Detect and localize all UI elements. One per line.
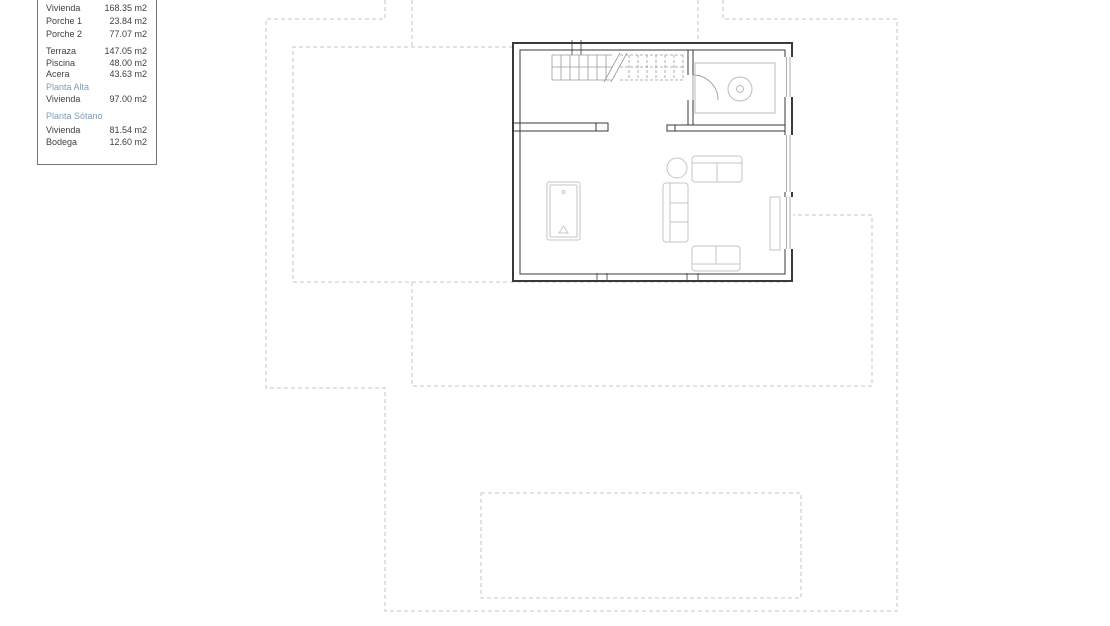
door-arc [693,75,718,100]
legend-value: 97.00 m2 [109,94,147,105]
bathroom-door [693,75,718,100]
sofa-left [663,183,688,242]
legend-value: 48.00 m2 [109,58,147,69]
interior-walls [513,50,785,131]
legend-label: Vivienda [46,125,80,136]
legend-label: Vivienda [46,3,80,14]
furniture [547,156,780,271]
legend-row: Bodega 12.60 m2 [38,137,156,148]
table-triangle-mark [559,226,568,233]
round-table [667,158,687,178]
legend-label: Bodega [46,137,77,148]
pool-table [547,182,580,240]
washbasin-drain [737,86,744,93]
legend-label: Piscina [46,58,75,69]
stair-break-line [611,53,627,82]
legend-row: Vivienda 168.35 m2 [38,3,156,14]
stair-break-line [604,53,620,82]
wall-end-cap [596,123,608,131]
pool-outline-dashed [481,493,801,598]
legend-value: 147.05 m2 [104,46,147,57]
legend-section-heading: Planta Sótano [38,111,156,122]
legend-row: Porche 2 77.07 m2 [38,29,156,40]
area-legend-box: Vivienda 168.35 m2 Porche 1 23.84 m2 Por… [37,0,157,165]
sofa-bottom [692,246,740,271]
plot-boundary-dashed [266,0,897,611]
stair-dashed-flight [620,55,683,80]
legend-value: 12.60 m2 [109,137,147,148]
bathroom-fixtures [695,63,775,113]
legend-value: 23.84 m2 [109,16,147,27]
legend-value: 77.07 m2 [109,29,147,40]
legend-label: Porche 2 [46,29,82,40]
washbasin-counter [695,63,775,113]
sofa-top [692,156,742,182]
legend-value: 168.35 m2 [104,3,147,14]
legend-row: Porche 1 23.84 m2 [38,16,156,27]
building-walls [513,40,792,282]
legend-label: Terraza [46,46,76,57]
wall-end-cap [667,125,675,131]
legend-label: Vivienda [46,94,80,105]
washbasin [728,77,752,101]
legend-row: Vivienda 81.54 m2 [38,125,156,136]
outer-wall [513,43,792,281]
legend-row: Piscina 48.00 m2 [38,58,156,69]
east-windows [784,57,794,249]
floor-plan-drawing [0,0,1110,626]
legend-value: 81.54 m2 [109,125,147,136]
legend-row: Terraza 147.05 m2 [38,46,156,57]
legend-row: Vivienda 97.00 m2 [38,94,156,105]
legend-section-heading: Planta Alta [38,82,156,93]
legend-row: Acera 43.63 m2 [38,69,156,80]
sideboard [770,197,780,250]
legend-label: Acera [46,69,70,80]
staircase [552,53,683,82]
legend-label: Porche 1 [46,16,82,27]
legend-value: 43.63 m2 [109,69,147,80]
